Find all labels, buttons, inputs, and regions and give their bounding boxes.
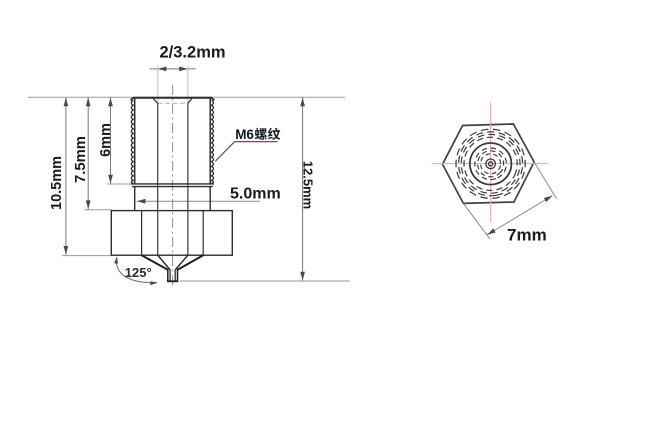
svg-text:10.5mm: 10.5mm: [49, 156, 65, 210]
svg-text:12.5mm: 12.5mm: [301, 161, 316, 209]
svg-text:2/3.2mm: 2/3.2mm: [160, 44, 226, 62]
svg-text:7mm: 7mm: [507, 226, 547, 245]
svg-text:125°: 125°: [125, 265, 152, 280]
svg-text:M6: M6: [235, 127, 254, 142]
svg-text:6mm: 6mm: [98, 123, 114, 157]
svg-text:5.0mm: 5.0mm: [230, 185, 281, 202]
svg-text:7.5mm: 7.5mm: [73, 136, 89, 183]
